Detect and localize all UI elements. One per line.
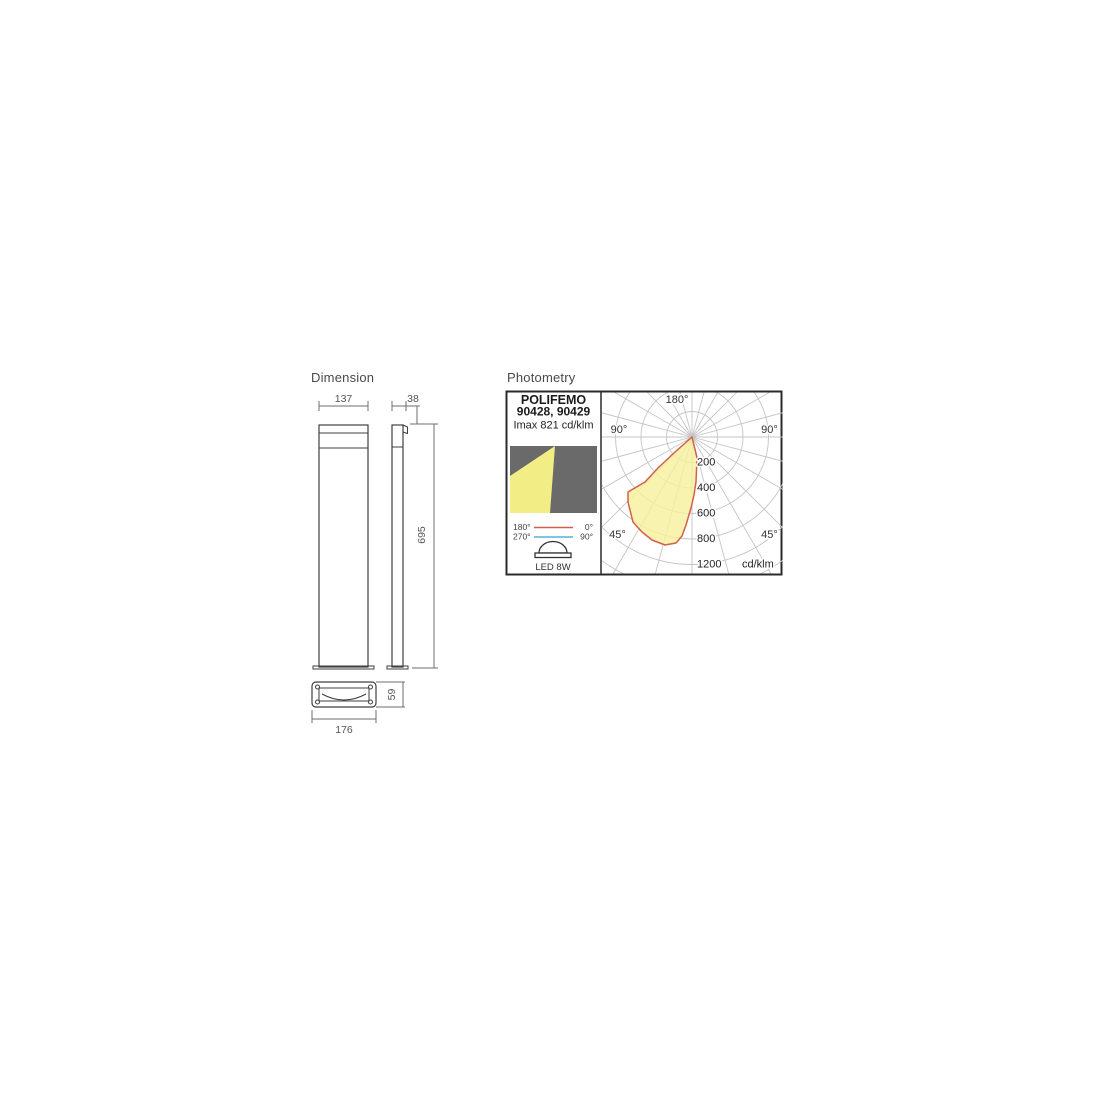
photometry-section-title: Photometry bbox=[507, 370, 575, 385]
angle-180-label: 180° bbox=[666, 394, 689, 406]
angle-45-right-label: 45° bbox=[761, 529, 778, 541]
ring-800-label: 800 bbox=[697, 533, 715, 545]
bollard-side-view bbox=[387, 425, 408, 669]
dimension-drawing: 137 38 695 59 176 bbox=[295, 385, 455, 750]
dimension-base-width: 176 bbox=[312, 710, 376, 736]
plane0-left-label: 180° bbox=[513, 522, 531, 532]
product-codes: 90428, 90429 bbox=[517, 405, 591, 419]
ring-600-label: 600 bbox=[697, 508, 715, 520]
dimension-side-depth: 38 bbox=[392, 393, 420, 424]
base-plate-view bbox=[312, 682, 376, 707]
height-label: 695 bbox=[416, 526, 428, 544]
beam-direction-icon bbox=[510, 446, 597, 513]
ring-400-label: 400 bbox=[697, 482, 715, 494]
angle-90-left-label: 90° bbox=[611, 424, 628, 436]
ring-200-label: 200 bbox=[697, 457, 715, 469]
base-height-label: 59 bbox=[386, 689, 398, 701]
side-depth-label: 38 bbox=[407, 393, 419, 405]
lamp-label: LED 8W bbox=[535, 562, 570, 573]
bollard-front-view bbox=[313, 425, 374, 669]
dimension-section-title: Dimension bbox=[311, 370, 374, 385]
dimension-height: 695 bbox=[410, 424, 438, 668]
photometry-box: POLIFEMO 90428, 90429 Imax 821 cd/klm 18… bbox=[505, 390, 785, 580]
unit-label: cd/klm bbox=[742, 559, 774, 571]
dimension-base-height: 59 bbox=[376, 682, 405, 707]
plane90-left-label: 270° bbox=[513, 532, 531, 542]
dimension-front-width: 137 bbox=[319, 393, 368, 411]
imax-value: Imax 821 cd/klm bbox=[513, 420, 593, 432]
base-width-label: 176 bbox=[335, 724, 353, 736]
angle-90-right-label: 90° bbox=[761, 424, 778, 436]
front-width-label: 137 bbox=[335, 393, 353, 405]
plane90-right-label: 90° bbox=[580, 532, 593, 542]
plane0-right-label: 0° bbox=[585, 522, 593, 532]
angle-45-left-label: 45° bbox=[609, 529, 626, 541]
ring-1200-label: 1200 bbox=[697, 559, 721, 571]
